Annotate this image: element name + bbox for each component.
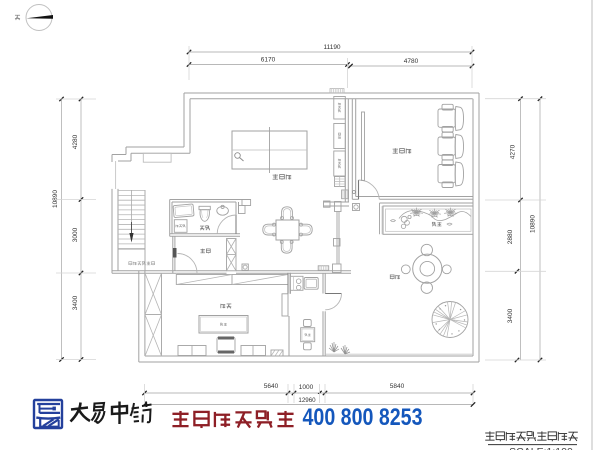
svg-text:3400: 3400 <box>507 308 514 323</box>
svg-text:10890: 10890 <box>52 190 59 208</box>
svg-text:1000: 1000 <box>299 384 314 391</box>
svg-text:4280: 4280 <box>72 134 79 149</box>
svg-text:2880: 2880 <box>507 229 514 244</box>
svg-text:5840: 5840 <box>390 383 405 390</box>
svg-text:10890: 10890 <box>530 215 537 233</box>
svg-text:5640: 5640 <box>264 383 279 390</box>
svg-text:11190: 11190 <box>323 44 340 51</box>
svg-text:6170: 6170 <box>261 57 276 64</box>
svg-text:SCALE:1:100: SCALE:1:100 <box>509 446 573 450</box>
svg-text:4780: 4780 <box>404 58 419 65</box>
svg-text:400 800 8253: 400 800 8253 <box>303 404 423 431</box>
svg-text:3400: 3400 <box>72 295 79 310</box>
svg-text:3000: 3000 <box>72 227 79 242</box>
svg-text:4270: 4270 <box>510 144 517 159</box>
svg-text:12960: 12960 <box>298 397 316 404</box>
